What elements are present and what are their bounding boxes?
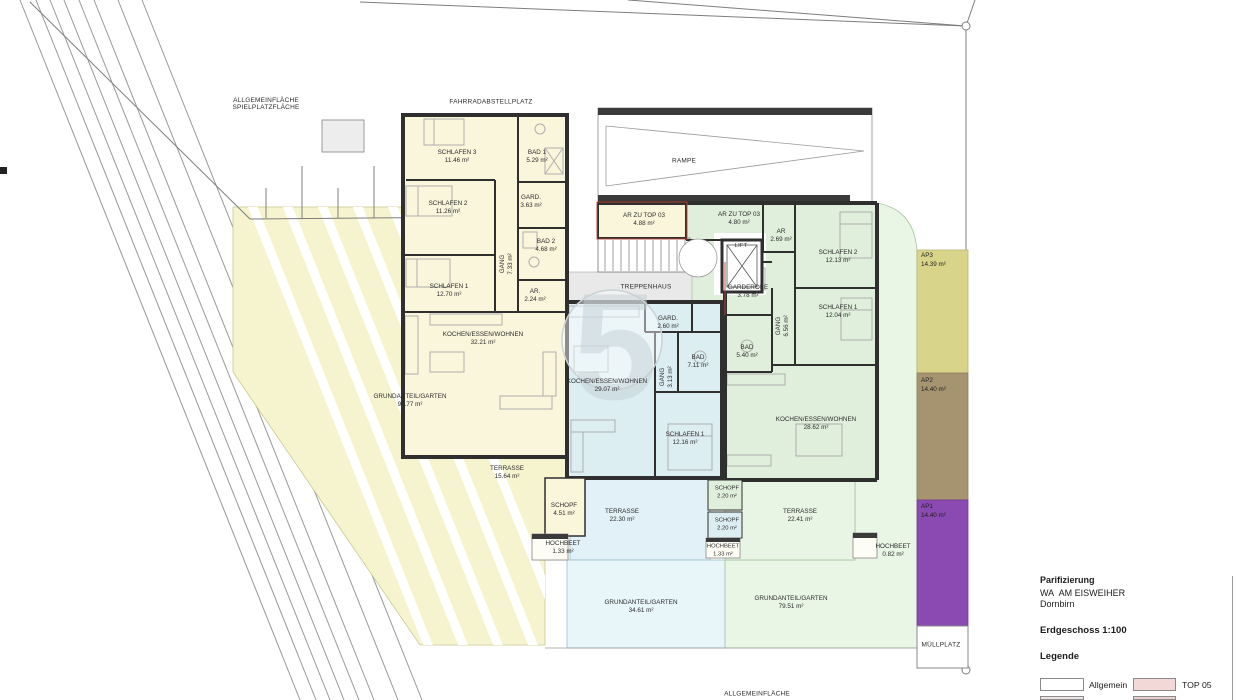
legend-label-top05: TOP 05 — [1182, 680, 1212, 690]
legend-swatch-top05 — [1133, 678, 1176, 691]
room-label-hochbeet-left: HOCHBEET1.33 m² — [546, 540, 581, 556]
bike-rack — [322, 120, 364, 152]
label-allgemeinflaeche-spielplatz: ALLGEMEINFLÄCHE SPIELPLATZFLÄCHE — [232, 97, 299, 111]
room-label-schlafen1-right: SCHLAFEN 112.04 m² — [819, 304, 858, 320]
label-muellplatz: MÜLLPLATZ — [922, 642, 961, 649]
room-label-kochen-left: KOCHEN/ESSEN/WOHNEN32.21 m² — [443, 331, 523, 347]
label-rampe: RAMPE — [672, 158, 696, 165]
room-label-ar-right: AR2.69 m² — [770, 228, 791, 244]
room-label-bad-mid: BAD7.11 m² — [688, 354, 709, 370]
room-label-schlafen2-left: SCHLAFEN 211.26 m² — [429, 200, 468, 216]
strip-label-ap1: AP114.40 m² — [921, 503, 946, 520]
room-label-terrasse-mid: TERRASSE22.30 m² — [605, 508, 639, 524]
rampe-area — [598, 108, 872, 202]
label-lift: LIFT — [735, 243, 748, 249]
room-label-schlafen1-mid: SCHLAFEN 112.16 m² — [666, 431, 705, 447]
strip-label-ap3: AP314.39 m² — [921, 252, 946, 269]
edge-mark — [0, 167, 7, 174]
room-label-schlafen1-left: SCHLAFEN 112.70 m² — [430, 283, 469, 299]
room-label-hochbeet-mid: HOCHBEET1.33 m² — [707, 543, 739, 558]
titleblock-legend-heading: Legende — [1040, 651, 1079, 662]
room-label-schlafen3: SCHLAFEN 311.46 m² — [438, 149, 477, 165]
legend-label-allgemein: Allgemein — [1089, 680, 1127, 690]
room-label-gang-right: GANG6.56 m² — [775, 315, 791, 336]
terrace-blue — [570, 478, 710, 560]
room-label-schopf-blue: SCHOPF2.20 m² — [715, 517, 739, 532]
room-label-grundanteil-mid: GRUNDANTEIL/GARTEN34.61 m² — [604, 599, 677, 615]
room-label-gard-left: GARD.3.63 m² — [520, 194, 541, 210]
room-label-ar-zu-top03-b: AR ZU TOP 034.80 m² — [718, 211, 760, 227]
room-label-kochen-mid: KOCHEN/ESSEN/WOHNEN29.07 m² — [567, 378, 647, 394]
legend-swatch-allgemein — [1040, 678, 1084, 691]
legend-swatch-partial-2 — [1133, 696, 1176, 700]
room-label-ar-zu-top03-a: AR ZU TOP 034.88 m² — [623, 212, 665, 228]
room-label-terrasse-right: TERRASSE22.41 m² — [783, 508, 817, 524]
titleblock-border — [1232, 576, 1233, 700]
room-label-schopf-green: SCHOPF2.20 m² — [715, 485, 739, 500]
room-label-bad2: BAD 24.68 m² — [535, 238, 556, 254]
room-label-garderobe: GARDEROBE3.78 m² — [728, 284, 768, 300]
room-label-schopf-left: SCHOPF4.51 m² — [551, 502, 577, 518]
room-label-ar-left: AR.2.24 m² — [524, 288, 545, 304]
room-label-grundanteil-left: GRUNDANTEIL/GARTEN94.77 m² — [373, 393, 446, 409]
titleblock-title: Parifizierung — [1040, 575, 1095, 585]
room-label-kochen-right: KOCHEN/ESSEN/WOHNEN28.62 m² — [776, 416, 856, 432]
titleblock-city: Dornbirn — [1040, 599, 1075, 609]
legend-swatch-partial-1 — [1040, 696, 1084, 700]
label-fahrradabstellplatz: FAHRRADABSTELLPLATZ — [449, 99, 532, 106]
room-label-bad1: BAD 15.29 m² — [526, 149, 547, 165]
label-allgemeinflaeche-bottom: ALLGEMEINFLÄCHE — [724, 691, 790, 698]
room-label-grundanteil-right: GRUNDANTEIL/GARTEN79.51 m² — [754, 595, 827, 611]
room-label-hochbeet-right: HOCHBEET0.82 m² — [876, 543, 911, 559]
floor-plan-page: 5 ALLGEMEINFLÄCHE SPIELPLATZFLÄCHE FAHRR… — [0, 0, 1236, 700]
label-treppenhaus: TREPPENHAUS — [621, 284, 672, 291]
room-label-schlafen2-right: SCHLAFEN 212.13 m² — [819, 249, 858, 265]
room-label-gang-mid: GANG3.13 m² — [659, 366, 675, 387]
room-label-bad-right: BAD5.40 m² — [736, 344, 757, 360]
parking-strips — [917, 250, 968, 668]
room-label-terrasse-left: TERRASSE15.64 m² — [490, 465, 524, 481]
titleblock-project: WA AM EISWEIHER — [1040, 588, 1125, 598]
titleblock-floor-scale: Erdgeschoss 1:100 — [1040, 625, 1127, 636]
room-label-gard-mid: GARD.2.60 m² — [657, 315, 678, 331]
room-label-gang-left: GANG7.33 m² — [499, 253, 515, 274]
strip-label-ap2: AP214.40 m² — [921, 377, 946, 394]
